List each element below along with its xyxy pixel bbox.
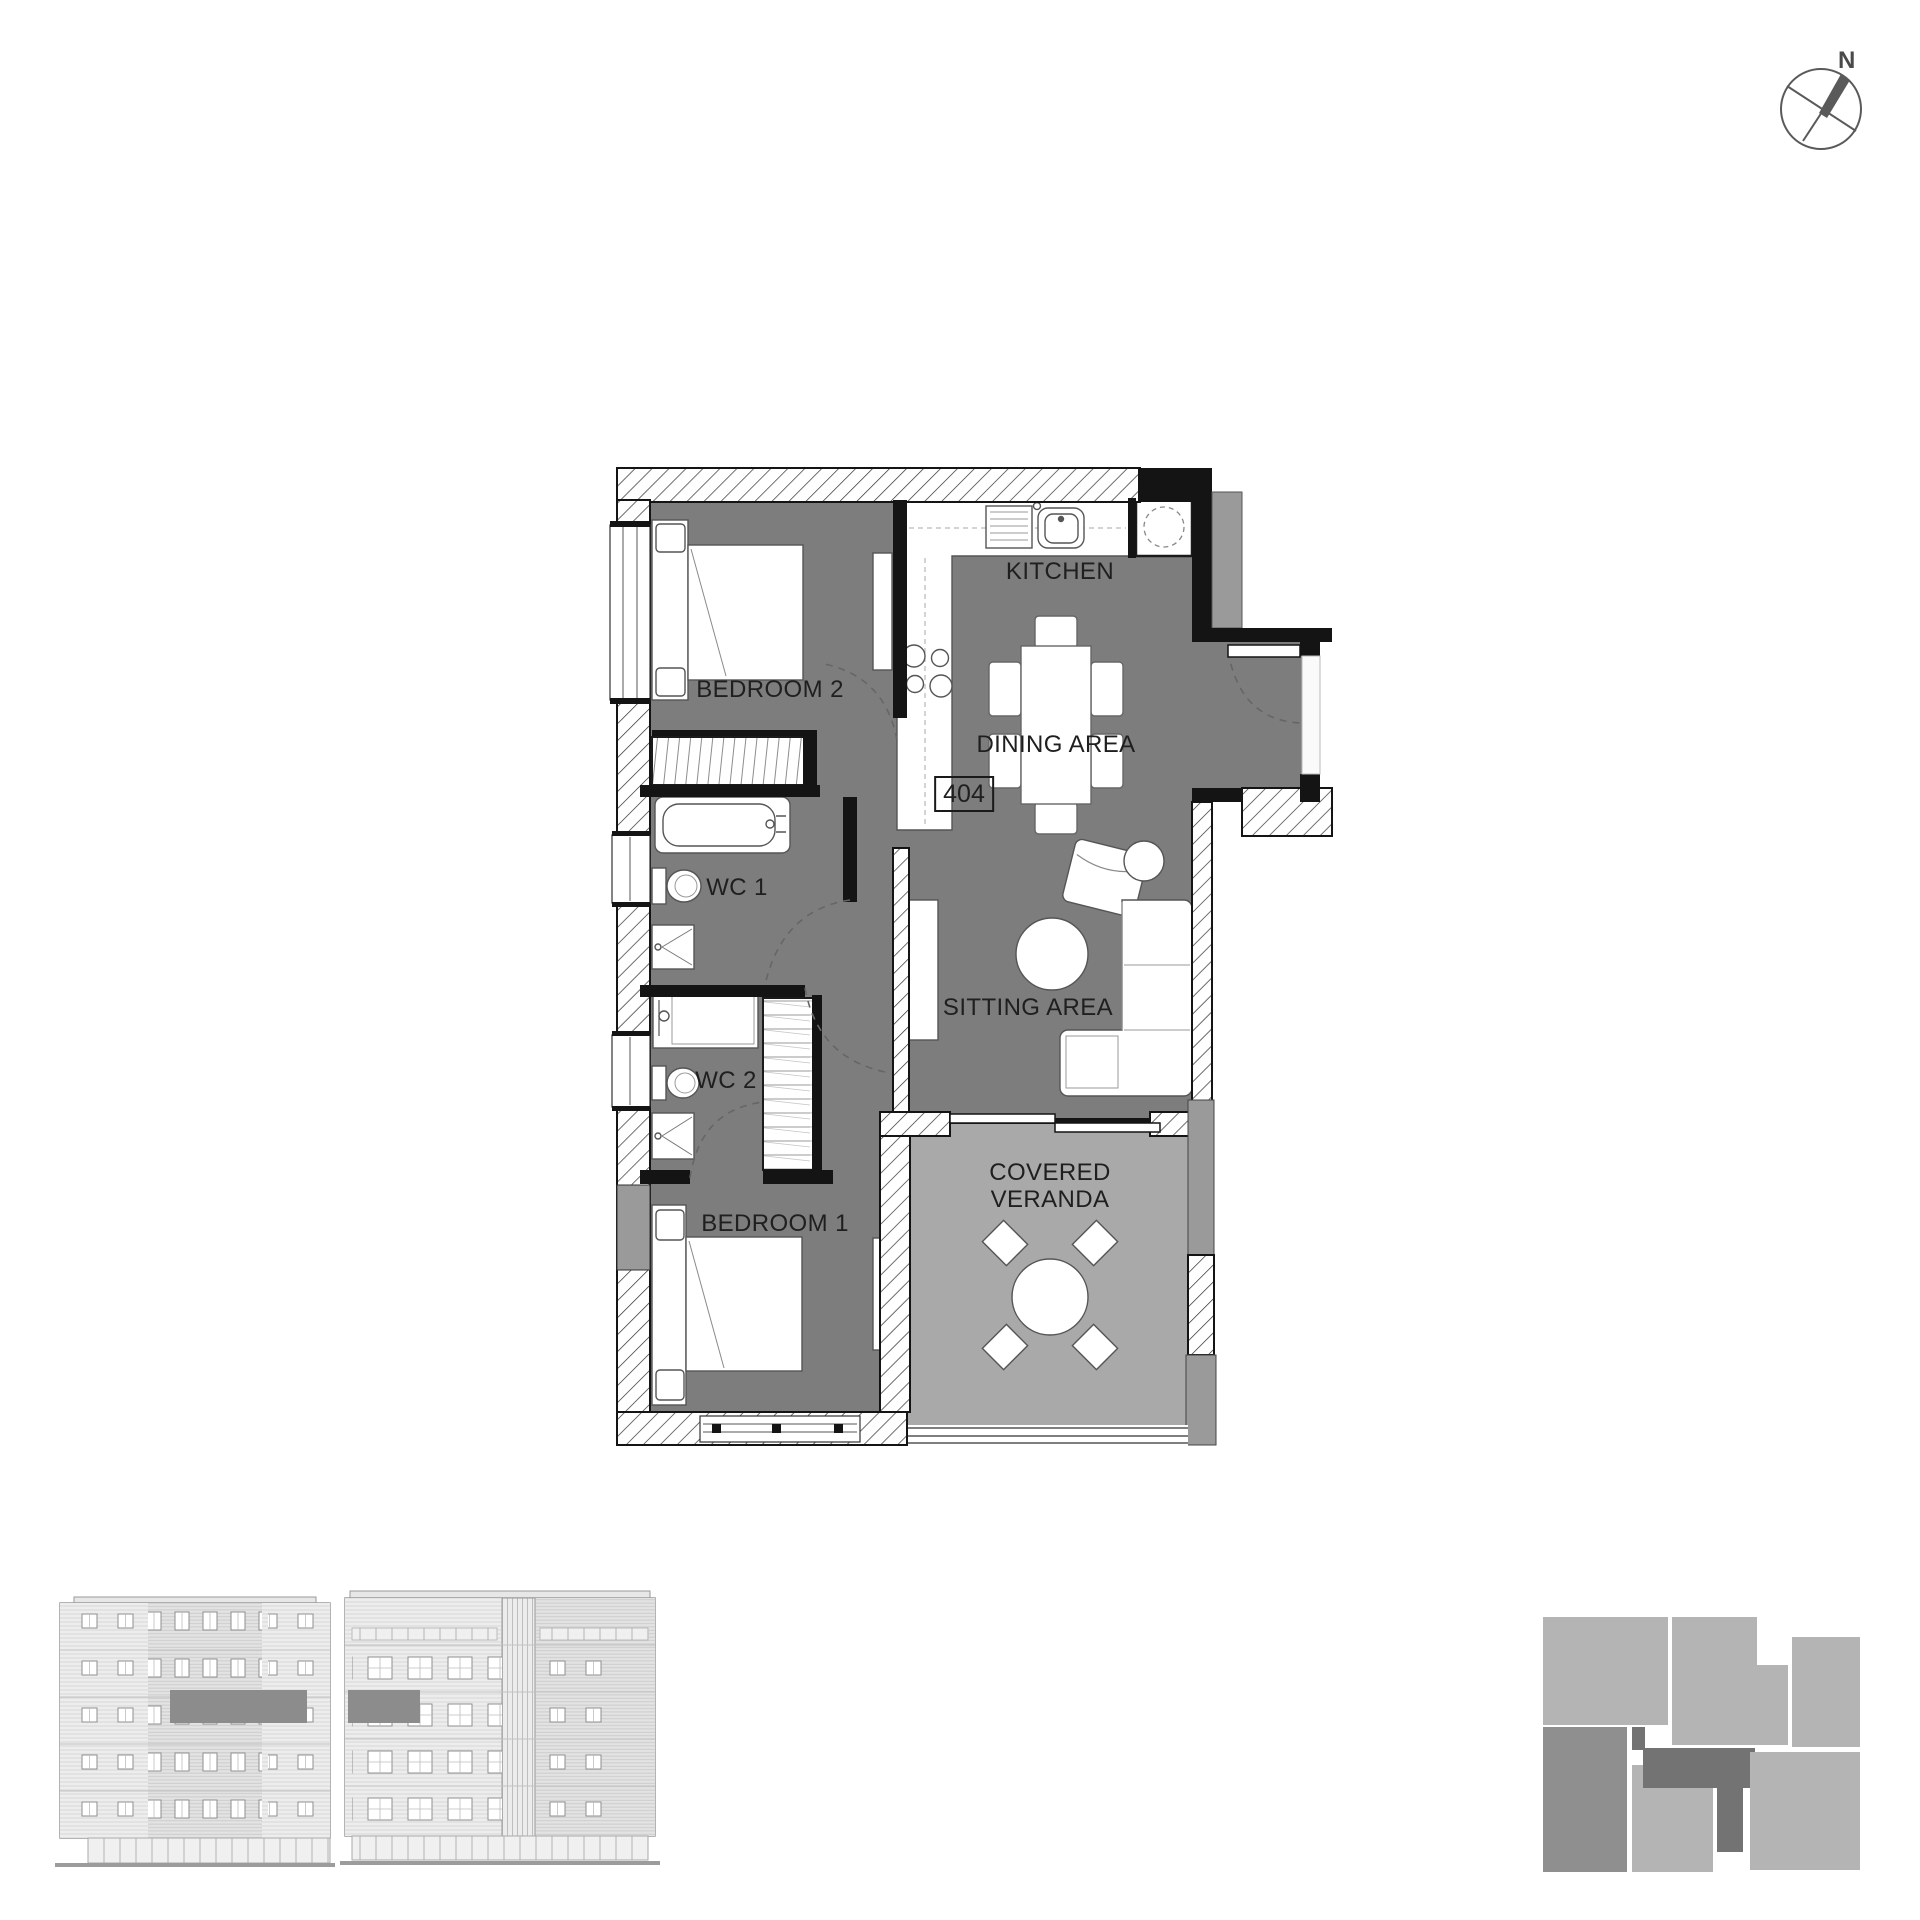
wall-gray-strip-kitchen <box>1212 492 1242 628</box>
washing-machine-icon <box>1136 498 1192 556</box>
elevation-drawing-2 <box>340 1591 660 1865</box>
coffee-table-icon <box>1016 918 1088 990</box>
elevation1-unit-highlight <box>170 1690 307 1723</box>
room-label-bedroom2: BEDROOM 2 <box>696 676 844 704</box>
keyplan-block <box>1750 1752 1860 1870</box>
unit-number-label: 404 <box>934 776 994 812</box>
entrance-opening <box>1302 656 1320 774</box>
elevation-drawing-1 <box>55 1597 335 1867</box>
bedroom2-dresser-icon <box>873 553 892 670</box>
floorplan-page: { "colors": { "floor_dark": "#7d7d7d", "… <box>0 0 1920 1920</box>
partition-wall <box>893 848 909 1118</box>
sliding-door-leaf-1 <box>950 1114 1055 1123</box>
washbasin2-icon <box>652 1113 694 1159</box>
keyplan-block <box>1543 1617 1668 1725</box>
room-label-wc1: WC 1 <box>706 874 768 902</box>
room-label-bedroom1: BEDROOM 1 <box>701 1210 849 1238</box>
bedroom2-wardrobe-icon <box>652 737 805 785</box>
veranda-railing <box>908 1425 1188 1447</box>
wall-top-right <box>1138 468 1212 502</box>
tv-unit-icon <box>908 900 938 1040</box>
floor-plan-drawing: N <box>0 0 1920 1920</box>
keyplan-dark-notch <box>1632 1727 1645 1750</box>
veranda-label-line2: VERANDA <box>989 1186 1111 1213</box>
shower-icon <box>653 990 758 1048</box>
bed2-icon <box>652 520 803 700</box>
bedroom1-window <box>700 1416 860 1442</box>
elevation2-unit-highlight <box>348 1690 420 1723</box>
bedroom1-wardrobe-icon <box>763 998 815 1170</box>
veranda-label-line1: COVERED <box>989 1159 1111 1186</box>
wc2-window <box>612 1031 650 1111</box>
compass-needle <box>1819 74 1850 118</box>
sliding-door-leaf-2 <box>1055 1123 1160 1132</box>
bedroom2-window <box>610 521 650 704</box>
left-wall-gray-block <box>617 1185 650 1270</box>
toilet1-icon <box>652 868 701 904</box>
compass-north-label: N <box>1838 47 1855 74</box>
wc1-window <box>612 831 650 907</box>
toilet2-icon <box>652 1066 699 1100</box>
room-label-dining-area: DINING AREA <box>976 731 1135 759</box>
entrance-door-leaf <box>1228 645 1300 657</box>
room-label-kitchen: KITCHEN <box>1006 558 1114 586</box>
wall-top <box>617 468 1140 502</box>
north-compass: N <box>1781 47 1861 149</box>
keyplan-block-medium <box>1543 1727 1627 1872</box>
key-plan <box>1543 1617 1860 1872</box>
room-label-wc2: WC 2 <box>695 1067 757 1095</box>
keyplan-block <box>1792 1637 1860 1747</box>
room-label-covered-veranda: COVERED VERANDA <box>989 1159 1111 1213</box>
keyplan-block <box>1672 1617 1788 1745</box>
room-label-sitting-area: SITTING AREA <box>943 994 1113 1022</box>
bathtub-icon <box>655 797 790 853</box>
side-table-icon <box>1124 841 1164 881</box>
washbasin1-icon <box>652 925 694 969</box>
